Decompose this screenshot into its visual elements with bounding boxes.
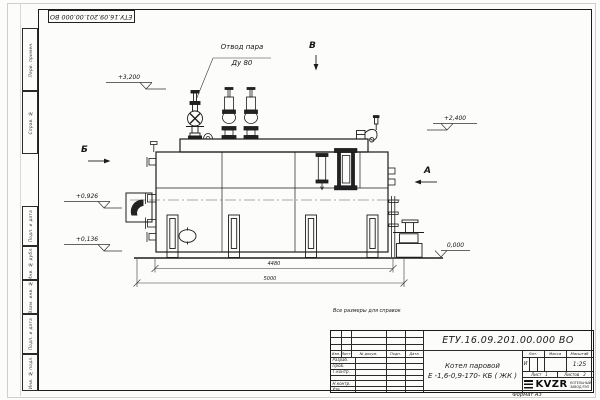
tb-product-line1: Котел паровой [445,361,500,372]
left-nozzles [146,142,158,243]
tb-header-docnum: № докум. [351,350,386,357]
tb-scale-value: 1:25 [566,357,593,371]
tb-doc-number: ЕТУ.16.09.201.00.000 ВО [423,331,593,350]
tb-line [331,337,423,338]
tb-lit-value: И [522,357,529,371]
feed-pump [393,220,424,257]
tb-row-utv: Утв. [331,386,357,392]
drawing-sheet: ЕТУ.16.09.201.00.000 ВО Перв. примен. Сп… [0,0,600,400]
tb-line [331,344,423,345]
tb-sheets-value: 2 [583,372,586,377]
burner [126,193,152,222]
tb-mass-label: Масса [544,350,566,357]
tb-sheet-label: Лист [531,372,541,377]
reference-note: Все размеры для справок [333,308,401,314]
tb-sheets-label: Листов [564,372,579,377]
manhole [179,228,196,245]
format-label: Формат А3 [502,392,552,398]
view-arrow-a [415,180,438,185]
drum-dome [204,134,213,140]
burner-fan-icon [131,199,144,215]
elevation-0000: 0,000 [441,242,470,249]
elevation-marks [64,83,477,258]
tb-line [386,331,387,392]
view-arrow-b-top [314,55,319,71]
steam-outlet-label-line1: Отвод пара [211,43,273,51]
tb-header-podp: Подп. [386,350,405,357]
safety-valve-right [244,88,258,140]
steam-outlet-valve [186,91,204,140]
safety-valve-left [222,88,236,140]
elevation-0136: +0,136 [64,236,110,243]
view-label-b-top: В [309,41,316,51]
water-gauge-large [335,149,357,190]
tb-line [529,357,530,371]
view-label-b-side: Б [81,145,88,155]
tb-header-data: Дата [405,350,423,357]
support-legs [167,215,378,258]
tb-header-list: Лист [341,350,351,357]
dimension-4480: 4480 [254,261,294,267]
elevation-3200: +3,200 [106,74,152,81]
kvzr-company-name: КОТЕЛЬНЫЙ ЗАВОД РЭП [570,381,591,389]
dimension-5000: 5000 [250,276,290,282]
tb-product-line2: Е -1,6-0,9-170- КБ ( ЖК ) [428,371,517,382]
steam-outlet-label-line2: Ду 80 [211,59,273,67]
tb-lit-label: Лит. [522,350,544,357]
elevation-2400: +2,400 [433,115,477,122]
tb-line [537,357,538,371]
tb-company-cell: KVZR КОТЕЛЬНЫЙ ЗАВОД РЭП [522,377,593,392]
view-label-a: А [424,166,431,176]
tb-header-izm: Изм. [331,350,341,357]
tb-scale-label: Масштаб [566,350,593,357]
tb-product-name: Котел паровой Е -1,6-0,9-170- КБ ( ЖК ) [423,350,522,392]
view-arrow-b-side [88,159,111,164]
kvzr-logo-text: KVZR [536,379,568,390]
kvzr-logo-icon [524,380,533,389]
tb-sheet-value: 1 [545,372,548,377]
drum-end-valve [357,116,380,142]
tb-line [405,331,406,392]
water-gauge-small [316,154,328,190]
elevation-0926: +0,926 [64,193,110,200]
kvzr-company-line2: ЗАВОД РЭП [570,385,589,389]
title-block: Изм. Лист № докум. Подп. Дата Разраб. Пр… [330,330,594,393]
